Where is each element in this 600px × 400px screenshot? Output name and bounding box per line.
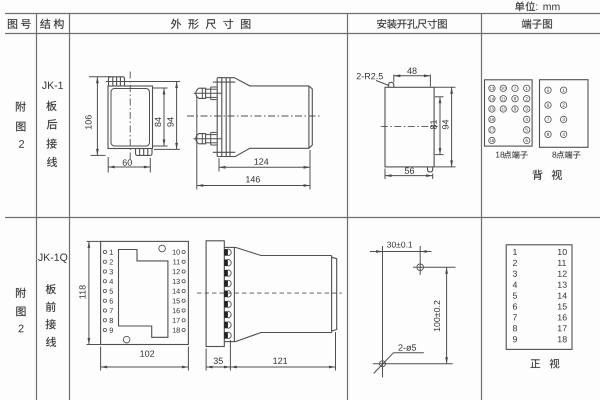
svg-text:1: 1 [525,86,528,91]
svg-text:18: 18 [557,334,567,344]
svg-text:2: 2 [18,323,24,335]
svg-text:146: 146 [245,174,260,184]
svg-text:11: 11 [173,257,181,266]
svg-text:12: 12 [557,269,567,279]
svg-text:2: 2 [18,139,24,151]
svg-text:4: 4 [562,132,565,137]
svg-text:14: 14 [172,287,180,296]
svg-text:94: 94 [165,117,175,127]
svg-text:6: 6 [512,302,517,312]
svg-text:35: 35 [213,356,223,366]
svg-text:106: 106 [84,115,94,130]
svg-text:124: 124 [254,157,269,167]
svg-text:84: 84 [153,117,163,127]
svg-text:2: 2 [109,257,113,266]
svg-text:6: 6 [547,103,550,108]
svg-text:8: 8 [512,323,517,333]
svg-text:18: 18 [172,326,180,335]
svg-text:15: 15 [490,107,495,112]
svg-text:10: 10 [501,86,506,91]
svg-text:17: 17 [172,316,180,325]
svg-text:3: 3 [512,269,517,279]
svg-text:11: 11 [557,258,566,268]
svg-text:3: 3 [525,107,528,112]
svg-text:2: 2 [562,103,565,108]
svg-text:8: 8 [109,316,113,325]
svg-text::: : [535,1,538,13]
svg-text:1: 1 [109,248,113,257]
svg-text:17: 17 [490,127,495,132]
svg-text:5: 5 [512,291,517,301]
svg-text:118: 118 [78,285,88,299]
svg-text:8: 8 [547,132,550,137]
svg-text:12: 12 [501,107,506,112]
svg-text:9: 9 [512,334,517,344]
svg-text:3: 3 [562,117,565,122]
svg-text:48: 48 [407,66,417,76]
svg-text:1: 1 [562,88,565,93]
svg-text:JK-1Q: JK-1Q [38,252,68,264]
svg-text:7: 7 [514,86,517,91]
svg-text:6: 6 [525,138,528,143]
svg-text:5: 5 [525,128,528,133]
svg-text:2: 2 [512,258,517,268]
svg-text:30±0.1: 30±0.1 [387,239,413,249]
svg-text:7: 7 [512,312,517,322]
svg-text:4: 4 [525,117,528,122]
svg-text:102: 102 [140,349,155,359]
svg-text:7: 7 [547,117,550,122]
svg-text:JK-1: JK-1 [42,80,64,92]
svg-text:13: 13 [172,277,180,286]
svg-text:8: 8 [514,96,517,101]
svg-text:5: 5 [109,287,113,296]
svg-text:17: 17 [557,323,567,333]
svg-text:12: 12 [172,267,180,276]
svg-text:10: 10 [557,247,567,257]
svg-text:2: 2 [525,96,528,101]
svg-text:4: 4 [109,277,113,286]
svg-text:8: 8 [552,149,557,159]
svg-text:14: 14 [557,291,567,301]
svg-text:10: 10 [172,248,180,257]
svg-text:9: 9 [109,326,113,335]
svg-text:15: 15 [172,296,180,305]
svg-text:5: 5 [547,88,550,93]
svg-text:56: 56 [404,166,414,176]
svg-text:81: 81 [429,119,439,129]
svg-text:1: 1 [512,247,517,257]
svg-text:3: 3 [109,267,113,276]
svg-text:4: 4 [512,280,517,290]
svg-text:18: 18 [495,149,505,159]
svg-text:14: 14 [490,96,495,101]
svg-text:11: 11 [501,96,506,101]
svg-text:94: 94 [440,119,450,129]
svg-text:60: 60 [122,158,132,168]
svg-text:16: 16 [557,312,567,322]
svg-text:2-R2.5: 2-R2.5 [356,71,383,81]
svg-text:121: 121 [273,356,288,366]
svg-text:16: 16 [172,306,180,315]
svg-text:13: 13 [557,280,567,290]
svg-text:13: 13 [490,86,495,91]
svg-text:7: 7 [109,306,113,315]
svg-text:mm: mm [543,1,561,13]
svg-text:6: 6 [109,296,113,305]
svg-text:100±0.2: 100±0.2 [432,300,442,332]
svg-text:15: 15 [557,302,567,312]
svg-text:18: 18 [490,138,495,143]
svg-text:16: 16 [490,117,495,122]
svg-text:9: 9 [514,107,517,112]
svg-text:2-ø5: 2-ø5 [398,343,417,353]
